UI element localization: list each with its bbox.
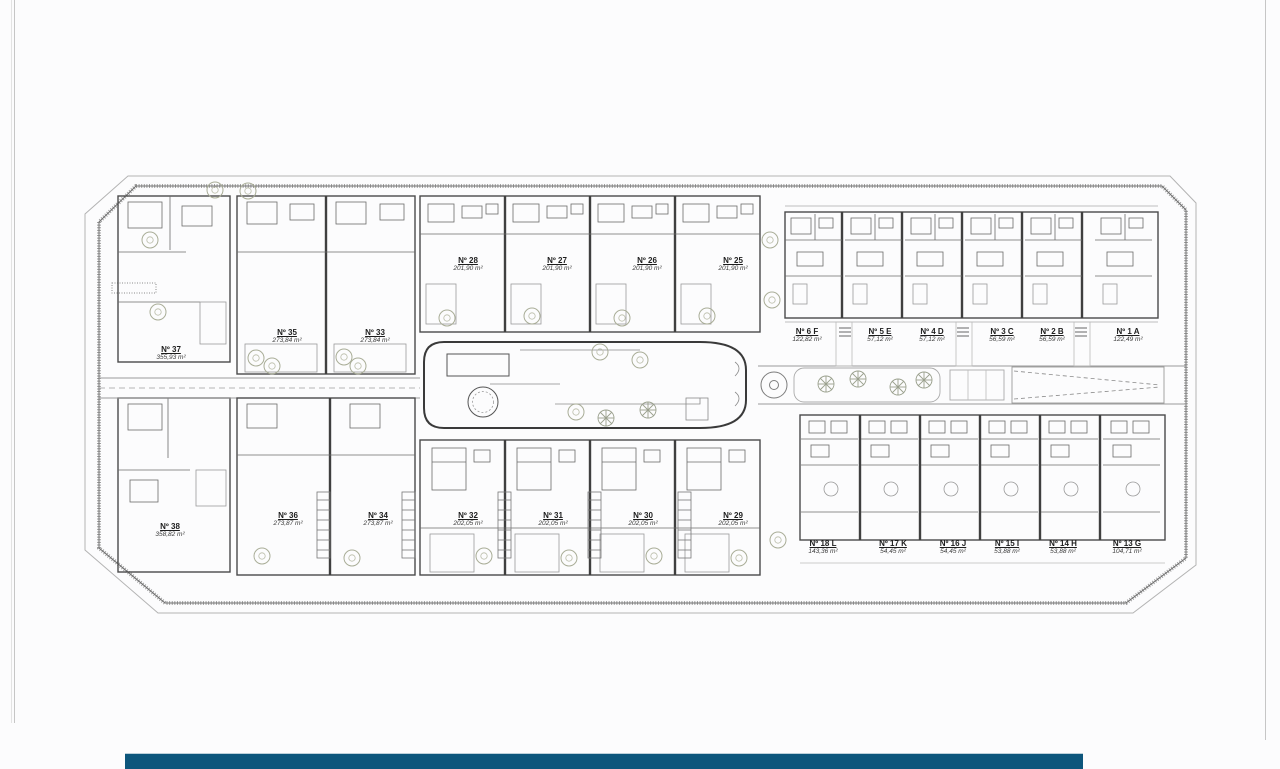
tree-icon: [344, 550, 360, 566]
unit-number: Nº 15 I: [994, 539, 1020, 548]
palm-tree-icon: [916, 372, 932, 388]
unit-area: 273,84 m²: [272, 337, 301, 345]
tree-icon: [731, 550, 747, 566]
unit-area: 358,82 m²: [155, 531, 184, 539]
tree-icon: [764, 292, 780, 308]
stairs-icon: [957, 328, 969, 336]
unit-label-28: Nº 28201,90 m²: [453, 256, 482, 273]
ladder-stairs-icon: [317, 492, 330, 558]
unit-area: 355,93 m²: [156, 354, 185, 362]
unit-label-13G: Nº 13 G104,71 m²: [1112, 539, 1141, 556]
unit-area: 201,90 m²: [542, 265, 571, 273]
unit-number: Nº 2 B: [1039, 327, 1065, 336]
unit-area: 273,84 m²: [360, 337, 389, 345]
unit-number: Nº 4 D: [919, 327, 945, 336]
unit-area: 54,45 m²: [940, 548, 967, 556]
unit-area: 202,05 m²: [718, 520, 747, 528]
site-boundary: [85, 176, 1196, 613]
unit-area: 202,05 m²: [628, 520, 657, 528]
unit-label-18L: Nº 18 L143,36 m²: [808, 539, 837, 556]
apartments-bottom-block: [800, 415, 1165, 563]
palm-tree-icon: [640, 402, 656, 418]
stairs-icon: [1075, 328, 1087, 336]
unit-label-3C: Nº 3 C56,59 m²: [989, 327, 1015, 344]
unit-area: 56,59 m²: [989, 336, 1015, 344]
unit-label-5E: Nº 5 E57,12 m²: [867, 327, 893, 344]
road-right: [758, 366, 1186, 404]
unit-label-36: Nº 36273,87 m²: [273, 511, 302, 528]
unit-label-25: Nº 25201,90 m²: [718, 256, 747, 273]
unit-label-26: Nº 26201,90 m²: [632, 256, 661, 273]
road-left: [99, 378, 420, 398]
unit-label-15I: Nº 15 I53,88 m²: [994, 539, 1020, 556]
ladder-stairs-icon: [678, 492, 691, 558]
unit-area: 201,90 m²: [718, 265, 747, 273]
unit-number: Nº 3 C: [989, 327, 1015, 336]
unit-area: 54,45 m²: [879, 548, 907, 556]
tree-icon: [248, 350, 264, 366]
unit-area: 53,88 m²: [1049, 548, 1077, 556]
palm-tree-icon: [850, 371, 866, 387]
pool-courtyard: [424, 342, 746, 428]
unit-area: 202,05 m²: [538, 520, 567, 528]
unit-number: Nº 26: [632, 256, 661, 265]
unit-label-17K: Nº 17 K54,45 m²: [879, 539, 907, 556]
page: Nº 37355,93 m² Nº 35273,84 m² Nº 33273,8…: [0, 0, 1280, 768]
unit-number: Nº 30: [628, 511, 657, 520]
tree-icon: [336, 349, 352, 365]
unit-area: 143,36 m²: [808, 548, 837, 556]
unit-number: Nº 14 H: [1049, 539, 1077, 548]
palm-tree-icon: [890, 379, 906, 395]
site-plan: [0, 0, 1280, 768]
tree-icon: [699, 308, 715, 324]
pool-pavilion: [447, 354, 509, 376]
stairs-icon: [839, 328, 851, 336]
unit-label-30: Nº 30202,05 m²: [628, 511, 657, 528]
apartments-top-block: [785, 206, 1158, 366]
unit-number: Nº 29: [718, 511, 747, 520]
unit-area: 56,59 m²: [1039, 336, 1065, 344]
unit-number: Nº 33: [360, 328, 389, 337]
unit-number: Nº 27: [542, 256, 571, 265]
unit-label-34: Nº 34273,87 m²: [363, 511, 392, 528]
palm-tree-icon: [598, 410, 614, 426]
villa-38-block: [118, 398, 230, 572]
unit-number: Nº 32: [453, 511, 482, 520]
townhouse-32-29-block: [402, 440, 760, 575]
townhouse-36-34-block: [237, 398, 415, 575]
unit-area: 273,87 m²: [273, 520, 302, 528]
vehicle-area: [1012, 367, 1164, 403]
unit-number: Nº 16 J: [940, 539, 967, 548]
unit-area: 201,90 m²: [632, 265, 661, 273]
unit-area: 57,12 m²: [919, 336, 945, 344]
unit-area: 122,49 m²: [1113, 336, 1142, 344]
unit-label-16J: Nº 16 J54,45 m²: [940, 539, 967, 556]
tree-icon: [762, 232, 778, 248]
unit-label-31: Nº 31202,05 m²: [538, 511, 567, 528]
unit-label-1A: Nº 1 A122,49 m²: [1113, 327, 1142, 344]
unit-label-4D: Nº 4 D57,12 m²: [919, 327, 945, 344]
unit-number: Nº 1 A: [1113, 327, 1142, 336]
unit-label-6F: Nº 6 F122,82 m²: [792, 327, 821, 344]
tree-icon: [632, 352, 648, 368]
ladder-stairs-icon: [402, 492, 415, 558]
unit-number: Nº 31: [538, 511, 567, 520]
unit-number: Nº 17 K: [879, 539, 907, 548]
unit-number: Nº 28: [453, 256, 482, 265]
unit-area: 202,05 m²: [453, 520, 482, 528]
unit-area: 122,82 m²: [792, 336, 821, 344]
tree-icon: [524, 308, 540, 324]
unit-area: 57,12 m²: [867, 336, 893, 344]
townhouse-35-33-block: [237, 196, 415, 374]
unit-label-33: Nº 33273,84 m²: [360, 328, 389, 345]
unit-number: Nº 34: [363, 511, 392, 520]
villa-37-block: [118, 196, 230, 362]
unit-label-27: Nº 27201,90 m²: [542, 256, 571, 273]
palm-tree-icon: [818, 376, 834, 392]
unit-number: Nº 37: [156, 345, 185, 354]
unit-area: 201,90 m²: [453, 265, 482, 273]
tree-icon: [254, 548, 270, 564]
unit-number: Nº 13 G: [1112, 539, 1141, 548]
unit-number: Nº 38: [155, 522, 184, 531]
perimeter-greenery: [142, 182, 786, 548]
unit-label-32: Nº 32202,05 m²: [453, 511, 482, 528]
unit-label-14H: Nº 14 H53,88 m²: [1049, 539, 1077, 556]
unit-label-29: Nº 29202,05 m²: [718, 511, 747, 528]
tree-icon: [561, 550, 577, 566]
unit-label-38: Nº 38358,82 m²: [155, 522, 184, 539]
unit-number: Nº 5 E: [867, 327, 893, 336]
tree-icon: [568, 404, 584, 420]
unit-number: Nº 6 F: [792, 327, 821, 336]
tree-icon: [592, 344, 608, 360]
unit-label-35: Nº 35273,84 m²: [272, 328, 301, 345]
tree-icon: [770, 532, 786, 548]
unit-area: 273,87 m²: [363, 520, 392, 528]
roundabout-icon: [761, 372, 787, 398]
unit-label-2B: Nº 2 B56,59 m²: [1039, 327, 1065, 344]
unit-number: Nº 18 L: [808, 539, 837, 548]
tree-icon: [646, 548, 662, 564]
tree-icon: [142, 232, 158, 248]
unit-number: Nº 35: [272, 328, 301, 337]
unit-area: 104,71 m²: [1112, 548, 1141, 556]
unit-area: 53,88 m²: [994, 548, 1020, 556]
tree-icon: [476, 548, 492, 564]
tree-icon: [150, 304, 166, 320]
unit-label-37: Nº 37355,93 m²: [156, 345, 185, 362]
unit-number: Nº 25: [718, 256, 747, 265]
unit-number: Nº 36: [273, 511, 302, 520]
footer-accent-bar: [125, 753, 1083, 769]
